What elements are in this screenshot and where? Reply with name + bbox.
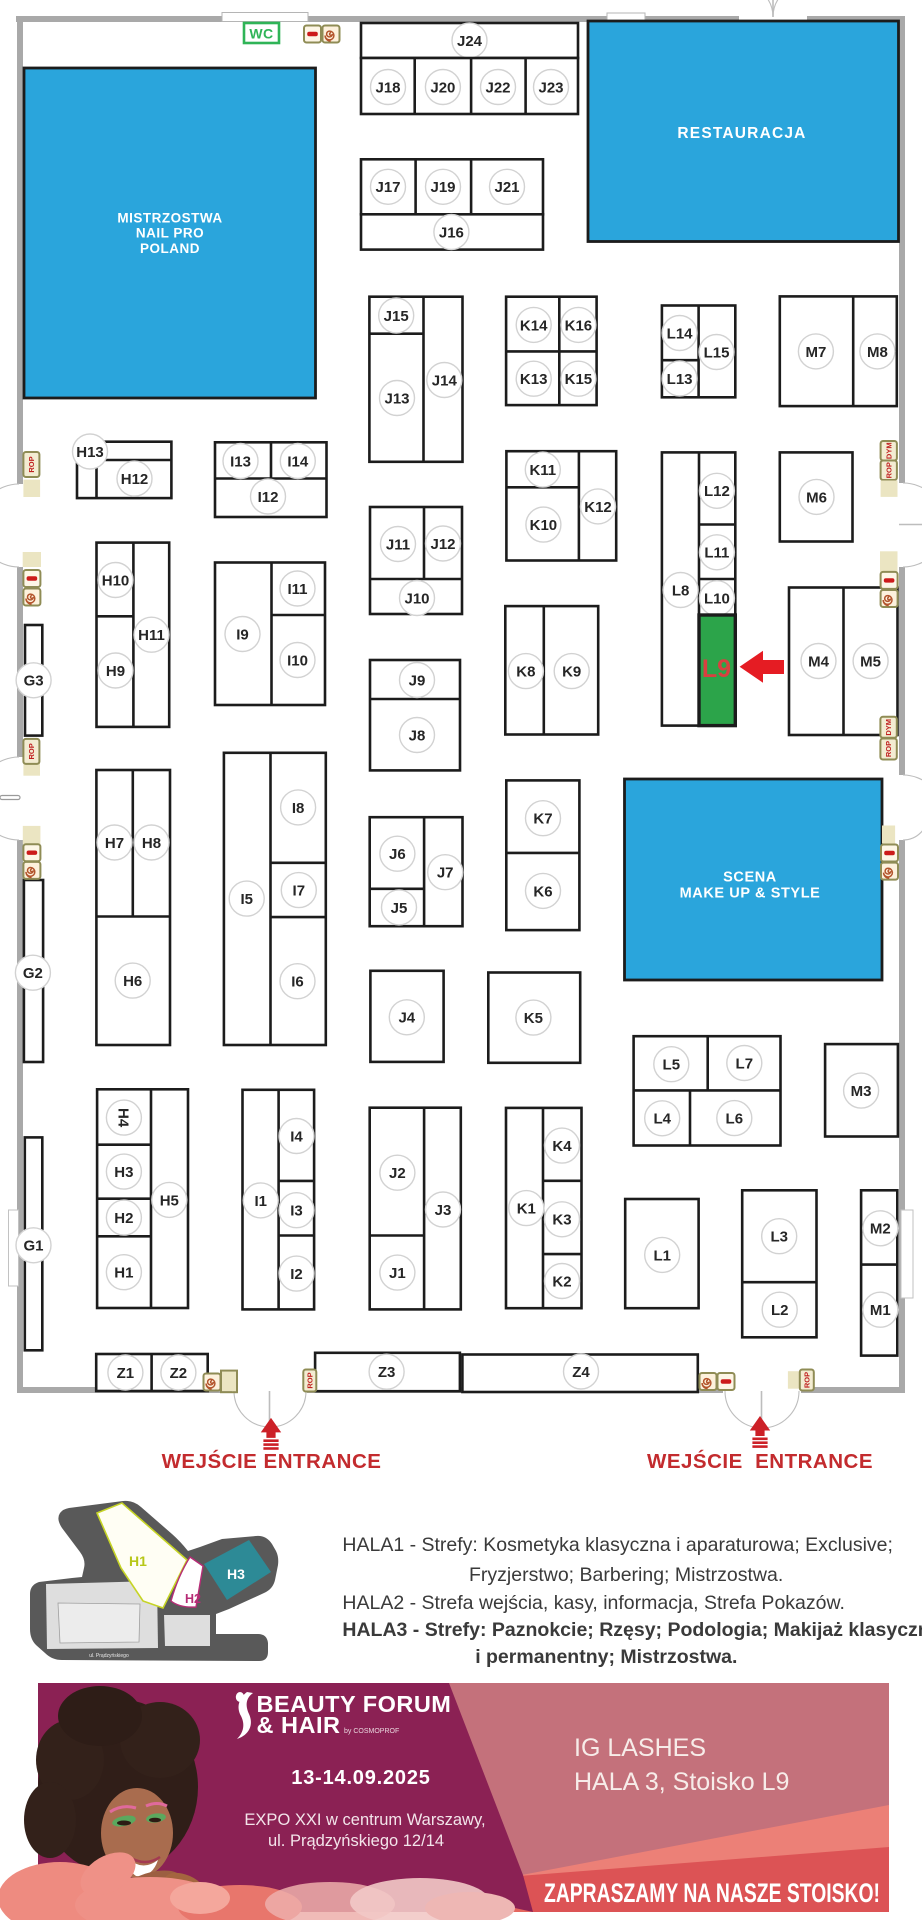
svg-text:J8: J8: [409, 727, 426, 744]
svg-text:H1: H1: [129, 1553, 147, 1569]
svg-text:M3: M3: [851, 1083, 872, 1100]
svg-text:M1: M1: [870, 1302, 891, 1319]
svg-text:I3: I3: [290, 1203, 303, 1220]
svg-text:K14: K14: [520, 317, 548, 334]
svg-text:H7: H7: [105, 835, 124, 852]
svg-text:H10: H10: [102, 572, 130, 589]
svg-text:H5: H5: [160, 1192, 179, 1209]
svg-text:L1: L1: [653, 1247, 671, 1264]
svg-text:J18: J18: [375, 79, 400, 96]
svg-text:K4: K4: [552, 1138, 572, 1155]
svg-text:WEJŚCIE ENTRANCE: WEJŚCIE ENTRANCE: [162, 1449, 382, 1473]
svg-text:H9: H9: [106, 663, 125, 680]
svg-text:K6: K6: [533, 883, 552, 900]
svg-text:H8: H8: [142, 835, 161, 852]
svg-text:J22: J22: [485, 79, 510, 96]
svg-text:M4: M4: [808, 653, 829, 670]
svg-text:G2: G2: [23, 965, 43, 982]
svg-text:J5: J5: [391, 900, 408, 917]
svg-text:Fryzjerstwo; Barbering; Mistrz: Fryzjerstwo; Barbering; Mistrzostwa.: [469, 1564, 783, 1586]
svg-text:I10: I10: [287, 652, 308, 669]
svg-text:L15: L15: [704, 344, 730, 361]
svg-text:Z2: Z2: [170, 1365, 188, 1382]
svg-text:J24: J24: [457, 33, 483, 50]
svg-text:WC: WC: [249, 26, 273, 42]
svg-text:J19: J19: [430, 179, 455, 196]
svg-text:WEJŚCIE ENTRANCE: WEJŚCIE ENTRANCE: [647, 1449, 873, 1473]
svg-text:J2: J2: [389, 1165, 406, 1182]
svg-text:I5: I5: [240, 891, 253, 908]
svg-text:L10: L10: [704, 591, 730, 608]
svg-text:H2: H2: [185, 1592, 201, 1606]
svg-text:& HAIR: & HAIR: [257, 1712, 341, 1738]
svg-text:J23: J23: [538, 79, 563, 96]
svg-text:J1: J1: [389, 1265, 406, 1282]
svg-text:K7: K7: [533, 811, 552, 828]
svg-text:K5: K5: [524, 1010, 543, 1027]
svg-text:H3: H3: [114, 1164, 133, 1181]
svg-text:J9: J9: [409, 672, 426, 689]
svg-text:DYM: DYM: [884, 719, 893, 736]
svg-text:IG LASHES: IG LASHES: [574, 1734, 706, 1762]
svg-text:I12: I12: [258, 489, 279, 506]
svg-text:J4: J4: [398, 1010, 415, 1027]
svg-text:M2: M2: [870, 1221, 891, 1238]
svg-text:J11: J11: [386, 536, 410, 553]
svg-text:EXPO XXI w centrum Warszawy,: EXPO XXI w centrum Warszawy,: [244, 1811, 485, 1829]
svg-text:HALA1 - Strefy: Kosmetyka klas: HALA1 - Strefy: Kosmetyka klasyczna i ap…: [342, 1534, 893, 1556]
svg-text:L2: L2: [771, 1302, 789, 1319]
svg-text:I2: I2: [290, 1266, 303, 1283]
svg-text:L6: L6: [726, 1111, 744, 1128]
svg-text:J16: J16: [439, 224, 464, 241]
svg-text:L3: L3: [770, 1229, 788, 1246]
svg-text:DYM: DYM: [884, 442, 893, 459]
svg-text:L12: L12: [704, 483, 730, 500]
svg-text:ROP: ROP: [305, 1372, 314, 1388]
svg-text:L11: L11: [704, 545, 729, 562]
svg-text:M6: M6: [806, 489, 827, 506]
svg-text:K15: K15: [565, 371, 593, 388]
svg-text:Z3: Z3: [378, 1364, 396, 1381]
svg-text:K12: K12: [584, 499, 612, 516]
svg-text:J10: J10: [404, 590, 429, 607]
svg-text:ZAPRASZAMY NA NASZE STOISKO!: ZAPRASZAMY NA NASZE STOISKO!: [544, 1878, 880, 1908]
svg-text:I8: I8: [292, 800, 305, 817]
svg-text:I11: I11: [287, 581, 307, 598]
svg-text:L5: L5: [663, 1057, 681, 1074]
svg-text:RESTAURACJA: RESTAURACJA: [677, 125, 806, 142]
svg-text:L14: L14: [667, 325, 694, 342]
svg-text:i permanentny; Mistrzostwa.: i permanentny; Mistrzostwa.: [475, 1646, 737, 1668]
svg-text:J13: J13: [384, 390, 409, 407]
svg-text:J6: J6: [389, 846, 406, 863]
svg-text:K8: K8: [516, 664, 535, 681]
svg-text:I1: I1: [254, 1193, 267, 1210]
svg-text:J14: J14: [432, 372, 458, 389]
svg-text:MISTRZOSTWA: MISTRZOSTWA: [117, 211, 222, 226]
svg-text:I7: I7: [293, 883, 306, 900]
svg-text:Z1: Z1: [117, 1365, 135, 1382]
svg-text:HALA 3, Stoisko L9: HALA 3, Stoisko L9: [574, 1768, 789, 1796]
svg-text:ROP: ROP: [27, 743, 36, 759]
svg-text:L13: L13: [667, 371, 693, 388]
svg-text:L4: L4: [653, 1111, 671, 1128]
svg-text:K3: K3: [552, 1212, 571, 1229]
svg-text:H11: H11: [138, 627, 165, 644]
svg-text:K13: K13: [520, 371, 548, 388]
svg-text:G1: G1: [23, 1238, 43, 1255]
svg-text:MAKE UP & STYLE: MAKE UP & STYLE: [680, 886, 821, 902]
svg-text:I9: I9: [236, 626, 249, 643]
svg-text:H12: H12: [121, 471, 149, 488]
svg-text:J21: J21: [494, 179, 519, 196]
svg-text:ROP: ROP: [27, 456, 36, 472]
svg-text:13-14.09.2025: 13-14.09.2025: [291, 1767, 430, 1789]
svg-text:L7: L7: [736, 1055, 754, 1072]
svg-text:ROP: ROP: [884, 741, 893, 757]
svg-text:K11: K11: [529, 462, 556, 479]
svg-text:ROP: ROP: [802, 1372, 811, 1388]
svg-text:SCENA: SCENA: [723, 870, 777, 886]
svg-text:J12: J12: [430, 536, 455, 553]
svg-text:HALA3 - Strefy: Paznokcie; Rzę: HALA3 - Strefy: Paznokcie; Rzęsy; Podolo…: [342, 1619, 922, 1641]
svg-text:I13: I13: [230, 453, 251, 470]
svg-text:ROP: ROP: [884, 462, 893, 478]
svg-text:G3: G3: [24, 673, 44, 690]
svg-text:M8: M8: [867, 344, 888, 361]
svg-text:L8: L8: [672, 582, 690, 599]
svg-text:K2: K2: [552, 1273, 571, 1290]
svg-text:I6: I6: [291, 974, 304, 991]
svg-text:H6: H6: [123, 973, 142, 990]
svg-text:J15: J15: [384, 308, 409, 325]
svg-text:H13: H13: [76, 444, 104, 461]
svg-text:J20: J20: [430, 79, 455, 96]
svg-text:J3: J3: [435, 1202, 452, 1219]
svg-text:by COSMOPROF: by COSMOPROF: [344, 1728, 399, 1735]
svg-text:Z4: Z4: [572, 1364, 590, 1381]
svg-text:I14: I14: [287, 453, 309, 470]
svg-text:J7: J7: [437, 865, 454, 882]
svg-text:I4: I4: [290, 1128, 303, 1145]
svg-text:ul. Prądzyńskiego 12/14: ul. Prądzyńskiego 12/14: [268, 1832, 444, 1850]
svg-text:M5: M5: [860, 653, 881, 670]
svg-text:K10: K10: [530, 517, 558, 534]
svg-text:POLAND: POLAND: [140, 241, 200, 256]
svg-text:L9: L9: [702, 655, 731, 683]
svg-text:K1: K1: [517, 1201, 536, 1218]
svg-text:NAIL PRO: NAIL PRO: [136, 226, 204, 241]
svg-text:H1: H1: [114, 1265, 133, 1282]
svg-text:H4: H4: [114, 1108, 131, 1128]
svg-text:J17: J17: [375, 179, 400, 196]
svg-text:K16: K16: [565, 317, 593, 334]
svg-text:M7: M7: [805, 344, 826, 361]
svg-text:K9: K9: [562, 664, 581, 681]
svg-text:H3: H3: [227, 1566, 245, 1582]
svg-text:HALA2 - Strefa wejścia, kasy,: HALA2 - Strefa wejścia, kasy, informacja…: [342, 1592, 845, 1614]
svg-text:ul. Prądzyńskiego: ul. Prądzyńskiego: [89, 1653, 129, 1659]
svg-text:H2: H2: [114, 1210, 133, 1227]
